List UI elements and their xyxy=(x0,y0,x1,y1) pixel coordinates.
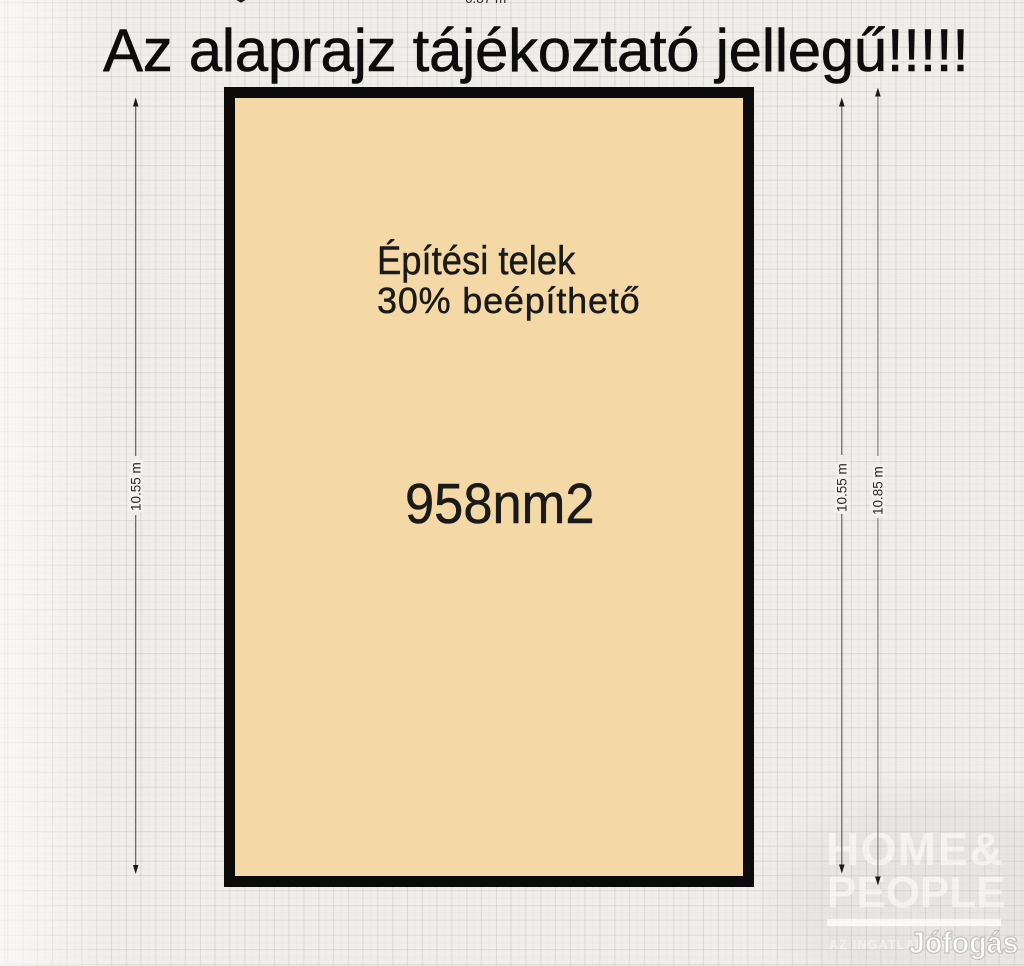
svg-text:10.85 m: 10.85 m xyxy=(871,466,886,515)
svg-text:10.55 m: 10.55 m xyxy=(835,463,850,512)
svg-text:10.55 m: 10.55 m xyxy=(129,462,144,511)
